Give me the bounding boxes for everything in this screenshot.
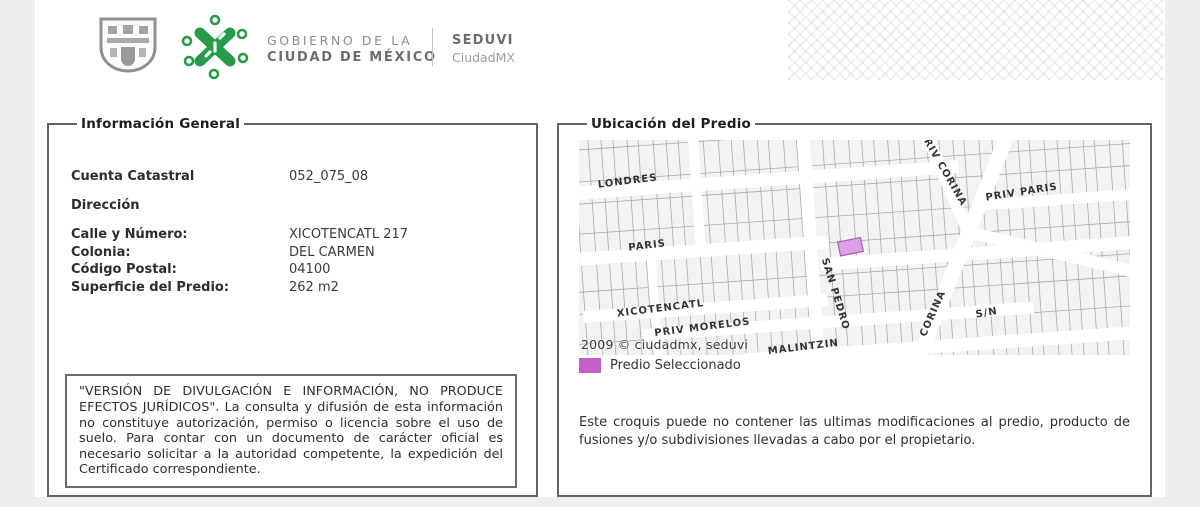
map-legend: Predio Seleccionado — [579, 358, 1130, 373]
field-value: 052_075_08 — [289, 169, 368, 185]
herringbone-pattern — [788, 0, 1163, 80]
government-wordmark: GOBIERNO DE LA CIUDAD DE MÉXICO — [267, 33, 437, 65]
header-divider — [432, 28, 433, 66]
page-header: GOBIERNO DE LA CIUDAD DE MÉXICO SEDUVI C… — [35, 0, 1165, 112]
selected-parcel-label: Predio Seleccionado — [610, 358, 741, 373]
info-general-title: Información General — [77, 116, 244, 132]
field-label: Superficie del Predio: — [71, 280, 289, 296]
field-value: 262 m2 — [289, 280, 339, 296]
map-canvas[interactable]: LONDRESPARISXICOTENCATLPRIV MORELOSMALIN… — [579, 140, 1130, 355]
field-row-cuenta: Cuenta Catastral 052_075_08 — [71, 169, 516, 185]
government-line1: GOBIERNO DE LA — [267, 33, 437, 48]
info-general-panel: Información General Cuenta Catastral 052… — [47, 116, 538, 497]
field-label: Cuenta Catastral — [71, 169, 289, 185]
field-row-direccion: Dirección — [71, 198, 516, 214]
field-label: Dirección — [71, 198, 289, 214]
page-sheet: GOBIERNO DE LA CIUDAD DE MÉXICO SEDUVI C… — [35, 0, 1165, 497]
field-row-superficie: Superficie del Predio: 262 m2 — [71, 280, 516, 296]
field-row-colonia: Colonia: DEL CARMEN — [71, 245, 516, 261]
field-value: XICOTENCATL 217 — [289, 227, 408, 243]
ubicacion-title: Ubicación del Predio — [587, 116, 755, 132]
cdmx-logo-icon — [179, 14, 251, 84]
ubicacion-panel: Ubicación del Predio LONDRESPARISXICOTEN… — [557, 116, 1152, 497]
agency-name: SEDUVI — [452, 33, 515, 48]
field-label: Colonia: — [71, 245, 289, 261]
city-shield-icon — [97, 15, 159, 79]
field-label: Código Postal: — [71, 262, 289, 278]
field-value: DEL CARMEN — [289, 245, 375, 261]
field-value: 04100 — [289, 262, 330, 278]
map-note: Este croquis puede no contener las ultim… — [579, 414, 1130, 449]
selected-parcel-swatch — [579, 358, 601, 373]
agency-platform: CiudadMX — [452, 50, 515, 65]
field-row-codigo-postal: Código Postal: 04100 — [71, 262, 516, 278]
map-copyright: 2009 © ciudadmx, seduvi — [581, 337, 748, 352]
field-row-calle: Calle y Número: XICOTENCATL 217 — [71, 227, 516, 243]
info-rows: Cuenta Catastral 052_075_08 Dirección Ca… — [69, 169, 516, 296]
field-label: Calle y Número: — [71, 227, 289, 243]
map-container: LONDRESPARISXICOTENCATLPRIV MORELOSMALIN… — [579, 140, 1130, 355]
legal-disclaimer-box: "VERSIÓN DE DIVULGACIÓN E INFORMACIÓN, N… — [65, 374, 517, 488]
government-line2: CIUDAD DE MÉXICO — [267, 50, 437, 65]
agency-wordmark: SEDUVI CiudadMX — [452, 33, 515, 65]
